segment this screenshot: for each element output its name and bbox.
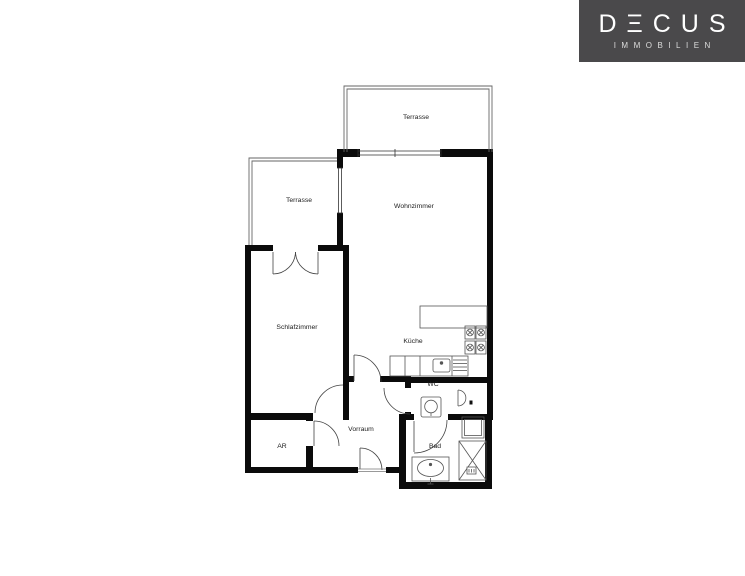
wall-segment xyxy=(386,467,405,473)
door-swing-icon xyxy=(384,388,410,414)
room-label-schlafzimmer: Schlafzimmer xyxy=(276,324,318,331)
door-swing-icon xyxy=(315,385,343,413)
floor-plan: Terrasse Terrasse Wohnzimmer Schlafzimme… xyxy=(0,0,745,576)
door-swing-icon xyxy=(354,355,381,382)
room-label-wc: WC xyxy=(427,381,438,388)
room-label-vorraum: Vorraum xyxy=(348,426,374,433)
wall-segment xyxy=(337,149,343,168)
wall-segment xyxy=(440,149,493,157)
wall-segment xyxy=(405,376,411,388)
wall-segment xyxy=(306,446,313,473)
room-label-bad: Bad xyxy=(429,443,441,450)
kitchen-counter xyxy=(420,306,487,328)
washing-machine-icon xyxy=(462,417,484,438)
window-icon xyxy=(358,149,441,157)
wall-segment xyxy=(343,245,349,420)
window-icon xyxy=(337,168,343,213)
room-label-kueche: Küche xyxy=(403,338,422,345)
wall-segment xyxy=(245,467,358,473)
kitchen-sink-icon xyxy=(433,359,450,372)
room-label-wohnzimmer: Wohnzimmer xyxy=(394,203,435,210)
washbasin-icon xyxy=(412,457,449,484)
brand-logo: DΞCUS IMMOBILIEN xyxy=(579,0,745,62)
door-swing-icon xyxy=(314,421,339,446)
wall-segment xyxy=(337,213,343,250)
shower-icon xyxy=(459,441,486,480)
wc-basin-icon xyxy=(458,390,473,406)
room-label-ar: AR xyxy=(277,443,287,450)
room-labels: Terrasse Terrasse Wohnzimmer Schlafzimme… xyxy=(276,114,441,450)
room-label-terrasse-left: Terrasse xyxy=(286,197,312,204)
wall-segment xyxy=(245,413,313,420)
room-label-terrasse-top: Terrasse xyxy=(403,114,429,121)
terrace-railings xyxy=(249,86,492,245)
wall-segment xyxy=(399,482,492,489)
wall-segment xyxy=(399,414,406,488)
sanitary-fixtures xyxy=(412,390,486,484)
brand-wordmark: DΞCUS xyxy=(588,12,735,37)
wall-segment xyxy=(306,413,313,421)
stove-icon xyxy=(465,326,486,354)
toilet-icon xyxy=(421,397,441,417)
wall-segment xyxy=(245,245,273,251)
wall-segment xyxy=(411,377,493,383)
french-door-icon xyxy=(273,252,318,274)
wall-segment xyxy=(245,245,251,473)
kitchen-counter xyxy=(390,356,468,376)
screenshot-root: Terrasse Terrasse Wohnzimmer Schlafzimme… xyxy=(0,0,745,576)
door-swing-icon xyxy=(358,448,386,472)
brand-subtitle: IMMOBILIEN xyxy=(608,42,716,50)
